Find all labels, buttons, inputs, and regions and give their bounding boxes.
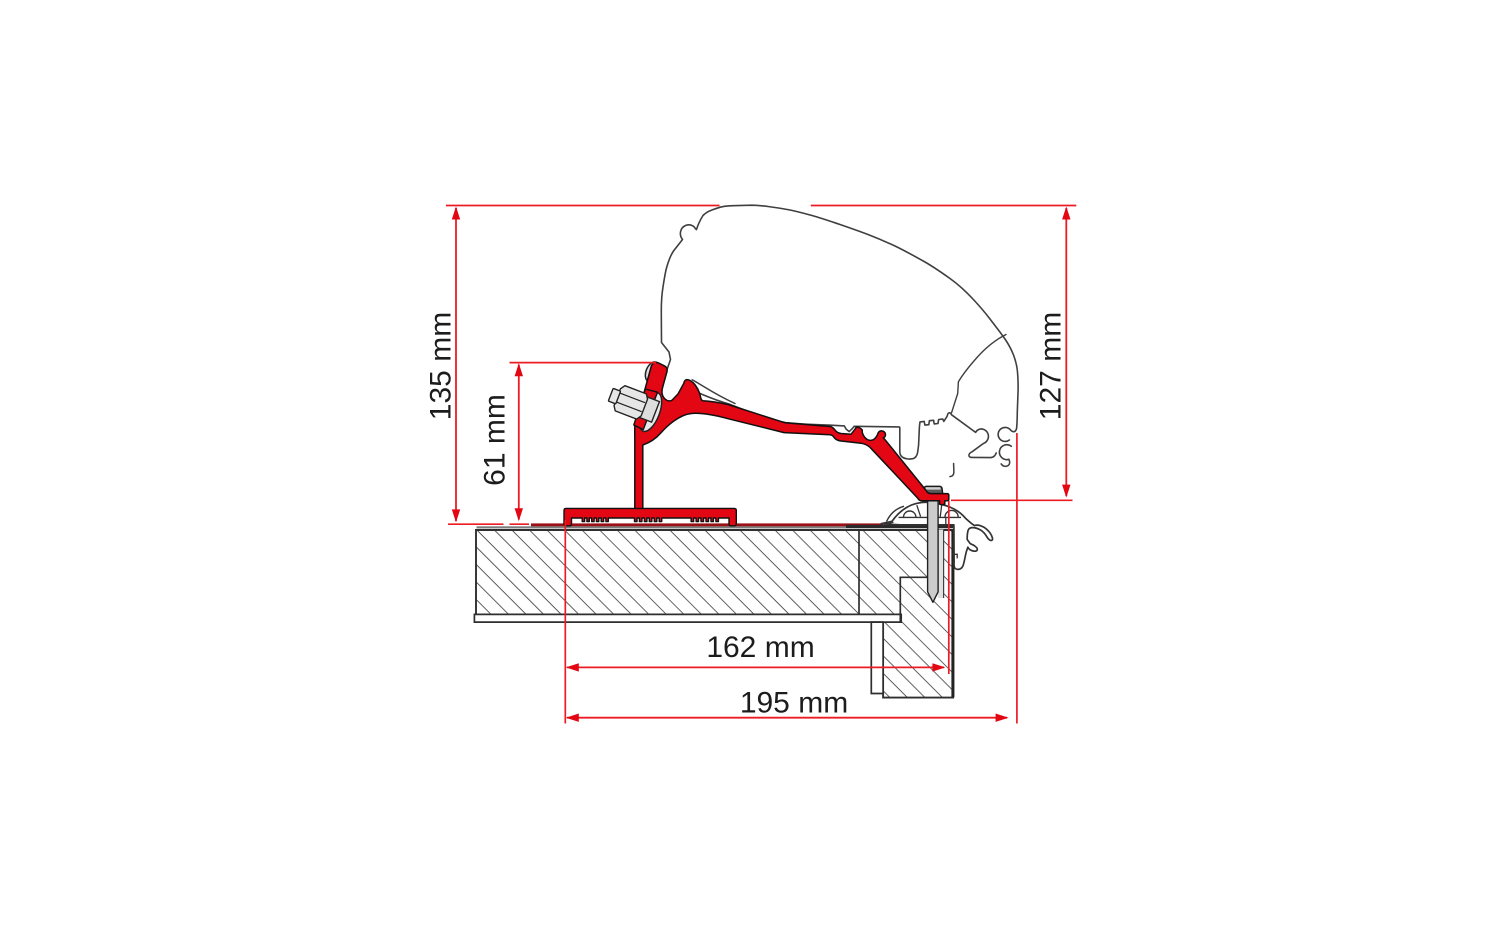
svg-text:61 mm: 61 mm bbox=[479, 394, 512, 486]
svg-text:162 mm: 162 mm bbox=[706, 631, 814, 664]
svg-text:135 mm: 135 mm bbox=[425, 312, 458, 420]
svg-text:195 mm: 195 mm bbox=[740, 687, 848, 720]
svg-text:127 mm: 127 mm bbox=[1035, 312, 1068, 420]
